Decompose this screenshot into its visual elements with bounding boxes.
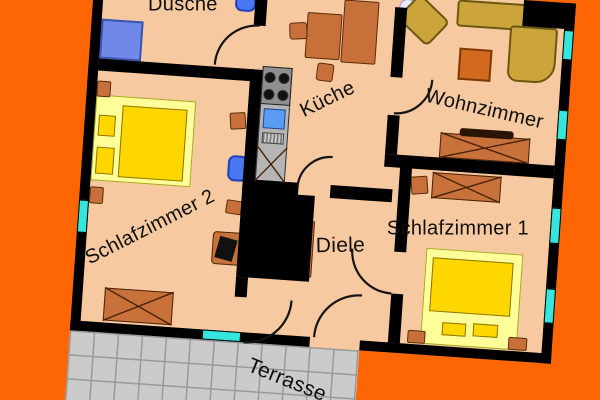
burner-icon xyxy=(279,73,290,84)
door-swing-layer xyxy=(63,0,577,400)
floorplan-canvas: Dusche Küche Wohnzimmer Schlafzimmer 2 D… xyxy=(0,0,600,400)
burner-icon xyxy=(264,89,275,100)
wardrobe-x-mark xyxy=(431,172,502,203)
door-swing-icon xyxy=(244,297,292,345)
door-swing-icon xyxy=(297,155,332,190)
door-swing-icon xyxy=(314,292,362,340)
dresser-x-mark xyxy=(103,288,174,326)
cabinet-x-mark xyxy=(255,146,287,183)
room-label-dusche: Dusche xyxy=(148,0,218,17)
room-label-diele: Diele xyxy=(316,233,366,258)
burner-icon xyxy=(277,90,288,101)
burner-icon xyxy=(265,72,276,83)
apartment-plan: Dusche Küche Wohnzimmer Schlafzimmer 2 D… xyxy=(61,0,575,400)
room-label-schlafzimmer1: Schlafzimmer 1 xyxy=(387,217,529,240)
sideboard-x-mark xyxy=(439,133,531,164)
door-swing-icon xyxy=(215,23,260,68)
